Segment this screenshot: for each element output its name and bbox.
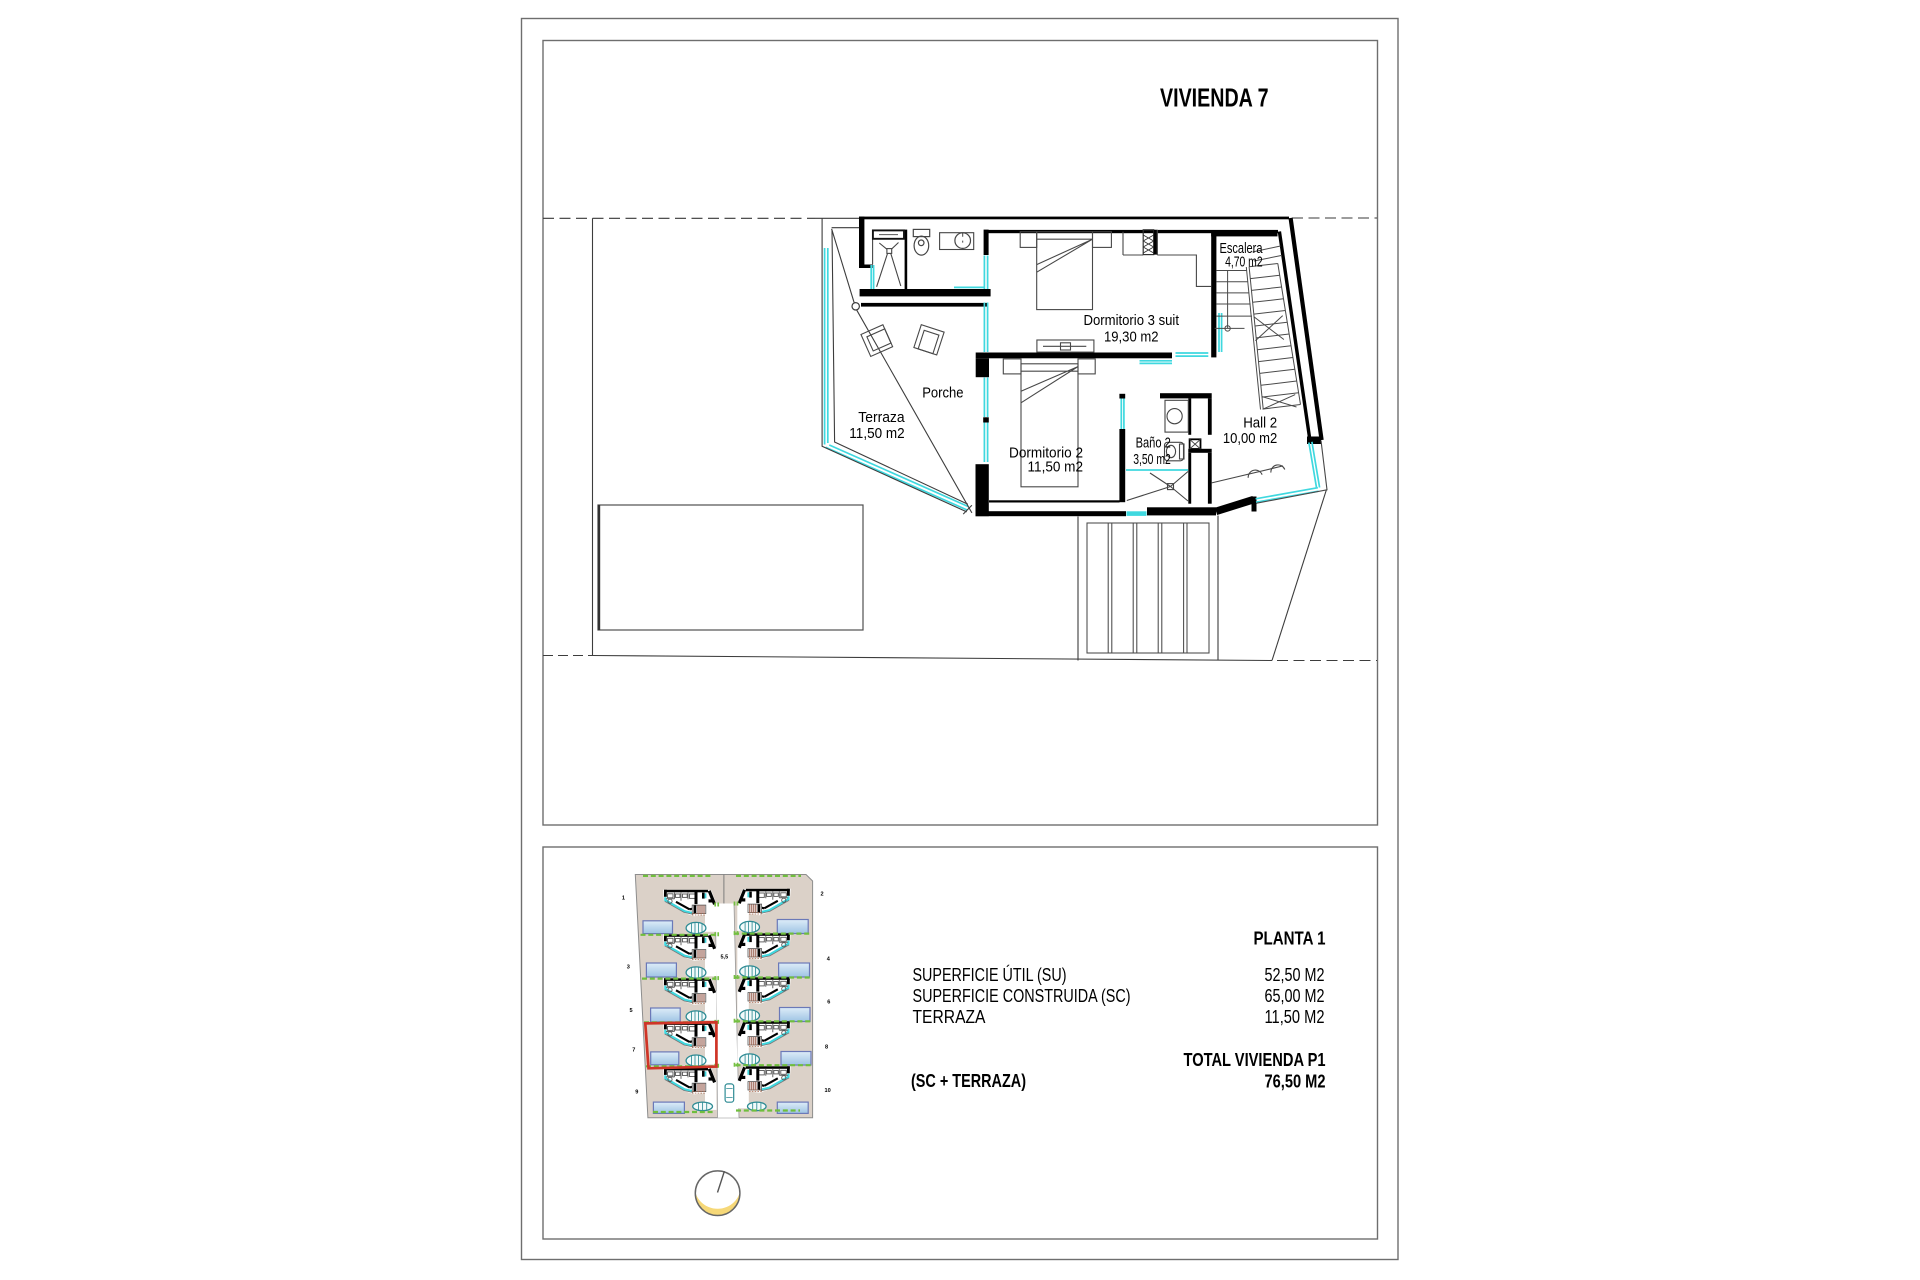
svg-text:10: 10 (825, 1088, 831, 1094)
svg-text:1: 1 (622, 896, 625, 902)
svg-text:4,70 m2: 4,70 m2 (1225, 253, 1263, 270)
svg-text:(SC + TERRAZA): (SC + TERRAZA) (911, 1071, 1026, 1091)
svg-text:11,50 m2: 11,50 m2 (849, 425, 904, 442)
svg-text:Hall 2: Hall 2 (1243, 414, 1277, 431)
svg-text:SUPERFICIE CONSTRUIDA (SC): SUPERFICIE CONSTRUIDA (SC) (913, 986, 1131, 1006)
svg-text:6: 6 (827, 1000, 830, 1006)
svg-text:TOTAL VIVIENDA P1: TOTAL VIVIENDA P1 (1184, 1050, 1326, 1070)
svg-text:3,50 m2: 3,50 m2 (1133, 451, 1171, 468)
svg-text:52,50 M2: 52,50 M2 (1265, 965, 1325, 985)
svg-text:2: 2 (821, 892, 824, 898)
svg-text:TERRAZA: TERRAZA (913, 1007, 986, 1027)
svg-text:Terraza: Terraza (858, 409, 905, 426)
svg-text:11,50 M2: 11,50 M2 (1265, 1007, 1325, 1027)
svg-text:PLANTA 1: PLANTA 1 (1254, 928, 1326, 948)
svg-text:SUPERFICIE ÚTIL (SU): SUPERFICIE ÚTIL (SU) (913, 964, 1067, 985)
svg-text:Porche: Porche (922, 385, 963, 402)
svg-text:5,5: 5,5 (721, 955, 729, 961)
svg-text:8: 8 (825, 1045, 828, 1051)
svg-text:19,30 m2: 19,30 m2 (1104, 328, 1159, 345)
svg-text:3: 3 (627, 965, 630, 971)
svg-text:10,00 m2: 10,00 m2 (1223, 430, 1277, 447)
svg-text:5: 5 (630, 1008, 633, 1014)
svg-text:11,50 m2: 11,50 m2 (1028, 459, 1084, 476)
svg-text:65,00 M2: 65,00 M2 (1265, 986, 1325, 1006)
svg-text:9: 9 (635, 1090, 638, 1096)
svg-text:76,50 M2: 76,50 M2 (1265, 1072, 1326, 1092)
svg-text:7: 7 (632, 1048, 635, 1054)
svg-text:Dormitorio 3 suit: Dormitorio 3 suit (1084, 312, 1180, 329)
svg-text:VIVIENDA 7: VIVIENDA 7 (1160, 85, 1269, 113)
svg-text:Baño 2: Baño 2 (1136, 435, 1171, 452)
